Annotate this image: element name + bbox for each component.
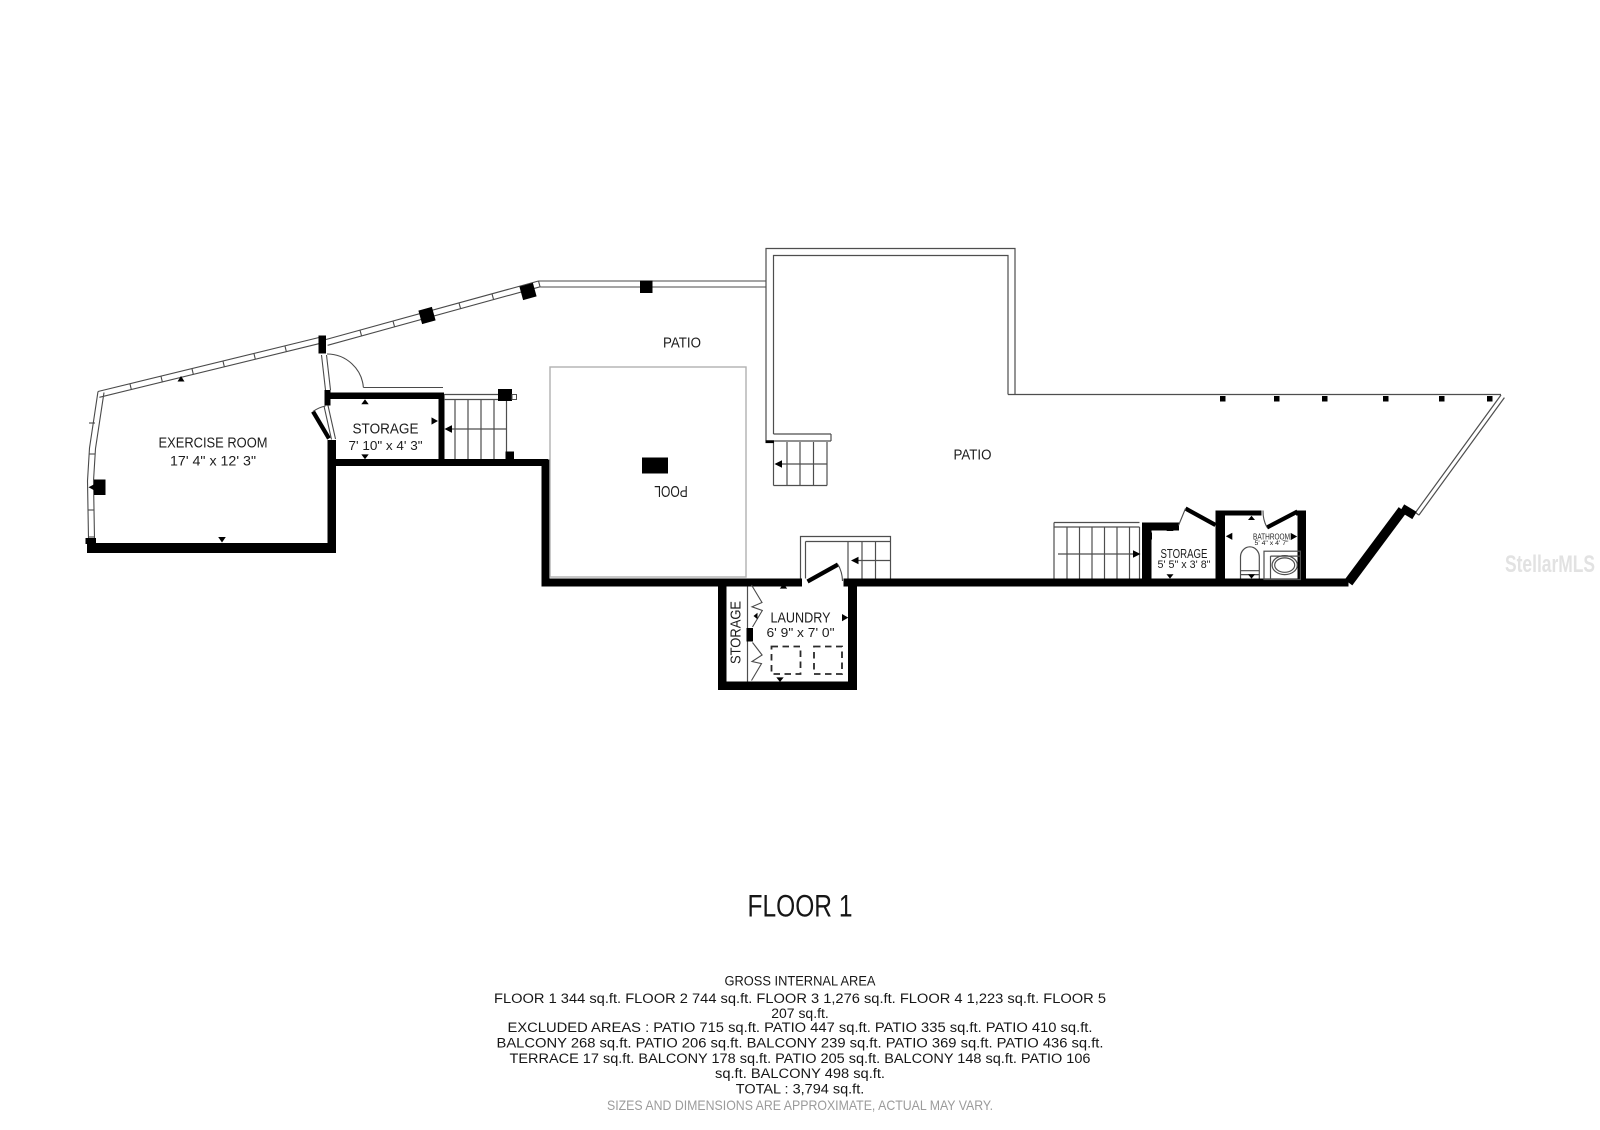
svg-text:PATIO: PATIO xyxy=(954,448,992,464)
svg-text:PATIO: PATIO xyxy=(663,336,701,352)
svg-text:FLOOR 1: FLOOR 1 xyxy=(748,888,853,924)
svg-text:TOTAL : 3,794 sq.ft.: TOTAL : 3,794 sq.ft. xyxy=(736,1081,865,1096)
svg-text:17' 4" x 12' 3": 17' 4" x 12' 3" xyxy=(170,453,256,469)
svg-text:SIZES AND DIMENSIONS ARE APPRO: SIZES AND DIMENSIONS ARE APPROXIMATE, AC… xyxy=(607,1098,993,1113)
svg-text:GROSS INTERNAL AREA: GROSS INTERNAL AREA xyxy=(725,973,876,988)
svg-text:STORAGE: STORAGE xyxy=(729,601,745,664)
svg-text:POOL: POOL xyxy=(654,482,688,499)
svg-text:5' 5" x 3' 8": 5' 5" x 3' 8" xyxy=(1158,559,1211,571)
svg-text:6' 9" x 7' 0": 6' 9" x 7' 0" xyxy=(767,625,835,640)
svg-text:sq.ft. BALCONY 498 sq.ft.: sq.ft. BALCONY 498 sq.ft. xyxy=(715,1066,885,1081)
svg-text:EXCLUDED AREAS : PATIO 715 sq: EXCLUDED AREAS : PATIO 715 sq.ft. PATIO … xyxy=(508,1020,1093,1035)
svg-text:TERRACE 17 sq.ft. BALCONY 17: TERRACE 17 sq.ft. BALCONY 178 sq.ft. PAT… xyxy=(510,1051,1091,1066)
svg-text:7' 10" x 4' 3": 7' 10" x 4' 3" xyxy=(349,438,423,453)
svg-text:STORAGE: STORAGE xyxy=(353,422,419,438)
svg-text:207 sq.ft.: 207 sq.ft. xyxy=(771,1006,829,1021)
svg-text:5' 4" x 4' 7": 5' 4" x 4' 7" xyxy=(1255,540,1290,547)
svg-text:FLOOR 1 344 sq.ft. FLOOR 2 7: FLOOR 1 344 sq.ft. FLOOR 2 744 sq.ft. FL… xyxy=(494,991,1106,1006)
svg-text:BALCONY 268 sq.ft. PATIO 206: BALCONY 268 sq.ft. PATIO 206 sq.ft. BALC… xyxy=(497,1035,1104,1050)
svg-text:EXERCISE ROOM: EXERCISE ROOM xyxy=(159,435,268,452)
svg-text:StellarMLS: StellarMLS xyxy=(1505,551,1595,578)
